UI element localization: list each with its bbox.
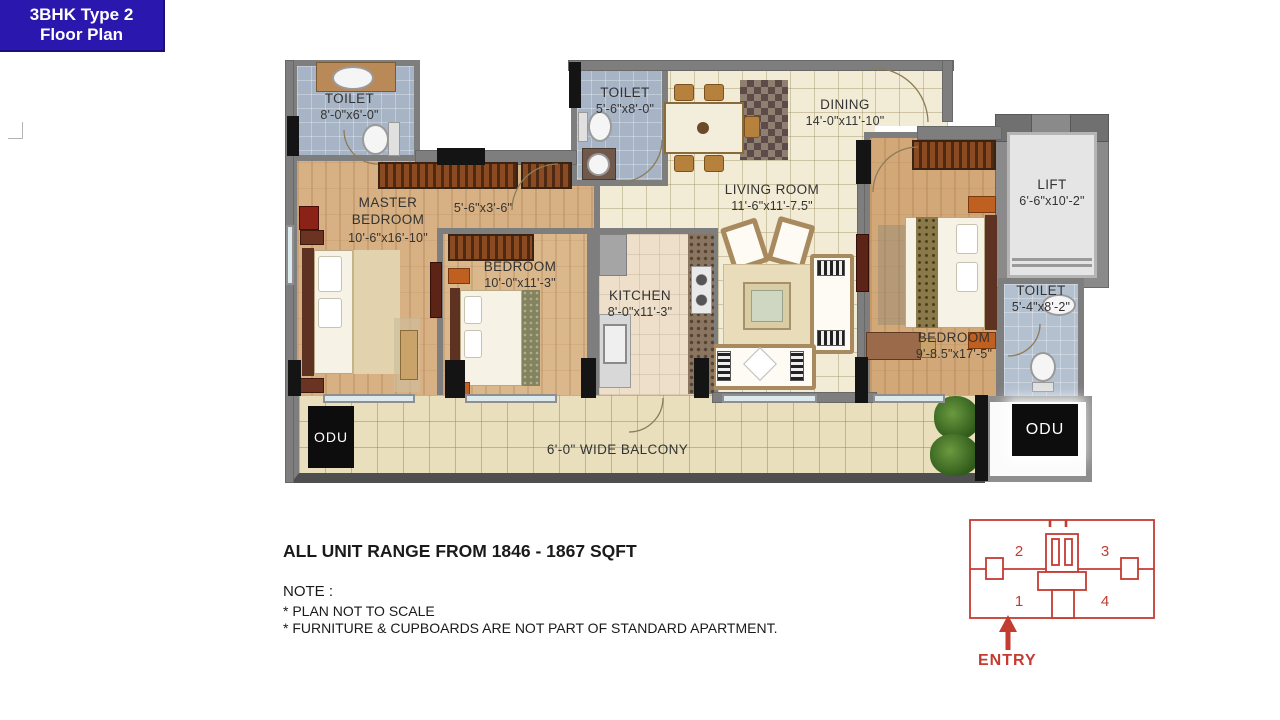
rug [878,225,908,325]
balcony [291,395,985,483]
keyplan-unit-4: 4 [1101,593,1109,610]
door-jamb [856,140,871,184]
room-dim: 5'-4"x8'-2" [1001,299,1081,316]
sofa-pillow [717,351,731,381]
label-lift: LIFT 6'-6"x10'-2" [1004,176,1100,210]
room-name: BEDROOM [452,258,588,275]
keyplan-left-duct [986,558,1003,579]
note-line-2: * FURNITURE & CUPBOARDS ARE NOT PART OF … [283,620,777,636]
room-name: KITCHEN [585,287,695,304]
window [286,225,294,285]
sofa-pillow [817,330,845,346]
door-jamb [855,357,868,403]
label-bedroom-2: BEDROOM 10'-0"x11'-3" [452,258,588,292]
keyplan-unit-1: 1 [1015,593,1023,610]
table-centerpiece [697,122,709,134]
label-bedroom-3: BEDROOM 9'-8.5"x17'-5" [888,329,1020,363]
wall-unit [299,206,319,230]
wardrobe [521,162,572,189]
room-dim: 5'-6"x8'-0" [582,101,668,118]
window [722,394,817,403]
bench [400,330,418,380]
bed-headboard [302,248,314,376]
dining-chair [674,84,694,101]
label-kitchen: KITCHEN 8'-0"x11'-3" [585,287,695,321]
door-jamb [445,360,465,398]
dining-chair [744,116,760,138]
lift-door-line [1012,264,1092,267]
bed-headboard [985,215,997,330]
door-leaf [430,262,442,318]
pillow [956,224,978,254]
room-dim: 6'-6"x10'-2" [1004,193,1100,210]
floor-plan-page: 3BHK Type 2 Floor Plan [0,0,1280,720]
label-toilet-master: TOILET 8'-0"x6'-0" [302,90,397,124]
label-master-dim: 10'-6"x16'-10" [322,230,454,247]
window [323,394,415,403]
window [465,394,557,403]
pillow [464,296,482,324]
sofa-pillow [817,260,845,276]
door-jamb [288,360,301,396]
blanket [352,250,400,374]
nightstand [300,378,324,393]
room-dim: 8'-0"x6'-0" [302,107,397,124]
room-dim: 8'-0"x11'-3" [585,304,695,321]
nightstand [968,196,996,213]
door-jamb [287,116,299,156]
window [873,394,945,403]
odu-right-label: ODU [1026,421,1065,439]
note-title: NOTE : [283,583,333,600]
wash-basin [332,66,374,90]
wall [942,60,953,122]
dining-chair [674,155,694,172]
door-jamb [437,148,485,165]
label-living-room: LIVING ROOM 11'-6"x11'-7.5" [688,181,856,215]
nightstand [300,230,324,245]
door-leaf [856,234,869,292]
room-dim: 14'-0"x11'-10" [775,113,915,130]
room-name: LIFT [1004,176,1100,193]
wall [568,60,954,71]
room-name: BEDROOM [888,329,1020,346]
room-name: LIVING ROOM [688,181,856,198]
corner-crop-mark [8,122,23,139]
lift-door-line [1012,258,1092,261]
label-passage-dim: 5'-6"x3'-6" [428,200,538,217]
wall [917,126,1002,140]
wc-bowl [1030,352,1056,382]
room-dim: 11'-6"x11'-7.5" [688,198,856,215]
room-name: TOILET [302,90,397,107]
wc-tank [388,122,400,156]
key-plan: 2 3 1 4 ENTRY [962,512,1162,672]
odu-unit-left: ODU [308,406,354,468]
wc-bowl [362,124,389,155]
label-toilet-3: TOILET 5'-4"x8'-2" [1001,282,1081,316]
wash-basin [587,153,610,176]
room-dim: 10'-0"x11'-3" [452,275,588,292]
wall-end [975,395,988,481]
door-jamb [569,62,581,108]
room-dim: 9'-8.5"x17'-5" [888,346,1020,363]
label-dining: DINING 14'-0"x11'-10" [775,96,915,130]
coffee-table-top [751,290,783,322]
door-jamb [694,358,709,398]
dining-chair [704,155,724,172]
wc-tank [1032,382,1054,392]
dining-chair [704,84,724,101]
badge-line2: Floor Plan [40,25,123,45]
plant [930,434,980,476]
note-line-1: * PLAN NOT TO SCALE [283,603,435,619]
keyplan-unit-3: 3 [1101,543,1109,560]
wardrobe [912,140,996,170]
wardrobe [448,234,534,261]
door-jamb [581,358,596,398]
keyplan-unit-2: 2 [1015,543,1023,560]
label-toilet-common: TOILET 5'-6"x8'-0" [582,84,668,118]
odu-unit-right: ODU [1012,404,1078,456]
room-name: TOILET [1001,282,1081,299]
keyplan-right-duct [1121,558,1138,579]
room-name: DINING [775,96,915,113]
entry-label: ENTRY [978,652,1037,669]
label-balcony: 6'-0" WIDE BALCONY [535,441,700,458]
badge-line1: 3BHK Type 2 [30,5,134,25]
odu-left-label: ODU [314,429,348,445]
blanket [916,217,938,328]
entry-arrow-icon [999,615,1017,650]
label-master-name: MASTER BEDROOM [342,194,434,228]
fridge [599,234,627,276]
wardrobe [378,162,518,189]
room-name: TOILET [582,84,668,101]
keyplan-core [1046,534,1078,572]
pillow [464,330,482,358]
pillow [318,298,342,328]
blanket [522,290,540,386]
pillow [318,256,342,292]
sofa-pillow [790,351,804,381]
unit-range-text: ALL UNIT RANGE FROM 1846 - 1867 SQFT [283,541,637,562]
pillow [956,262,978,292]
title-badge: 3BHK Type 2 Floor Plan [0,0,165,52]
kitchen-sink [603,324,627,364]
